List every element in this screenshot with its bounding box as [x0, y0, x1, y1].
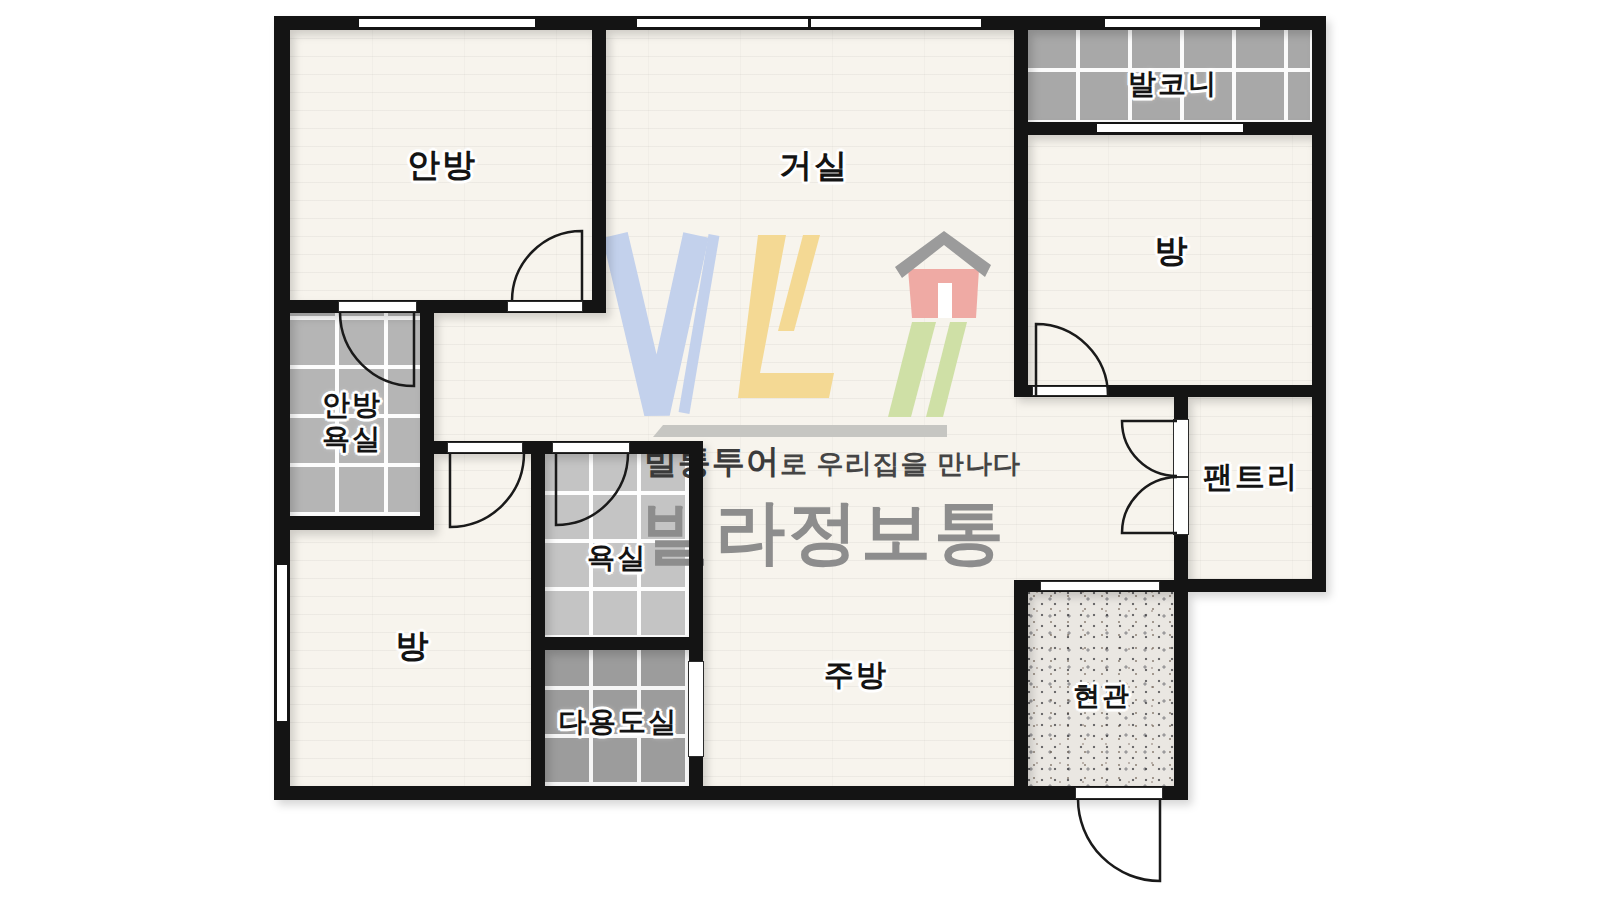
room-label-anbang: 안방: [407, 143, 477, 188]
room-label-living: 거실: [779, 144, 849, 189]
room-label-pantry: 팬트리: [1203, 457, 1299, 498]
room-label-bath: 욕실: [587, 539, 647, 577]
room-label-utility: 다용도실: [558, 703, 678, 741]
room-label-room-right: 방: [1155, 229, 1190, 274]
labels-layer: 안방 거실 발코니 방 안방 욕실 욕실 방 다용도실 주방 팬트리 현관: [0, 0, 1600, 900]
floorplan: 빌통투어로 우리집을 만나다 빌라정보통: [0, 0, 1600, 900]
room-label-master-bath-line2: 욕실: [322, 423, 382, 454]
room-label-master-bath: 안방 욕실: [322, 388, 382, 456]
room-label-master-bath-line1: 안방: [322, 389, 382, 420]
room-label-kitchen: 주방: [824, 655, 888, 696]
room-label-balcony: 발코니: [1128, 65, 1218, 103]
room-label-entrance: 현관: [1073, 678, 1131, 714]
room-label-room-left: 방: [396, 624, 431, 669]
